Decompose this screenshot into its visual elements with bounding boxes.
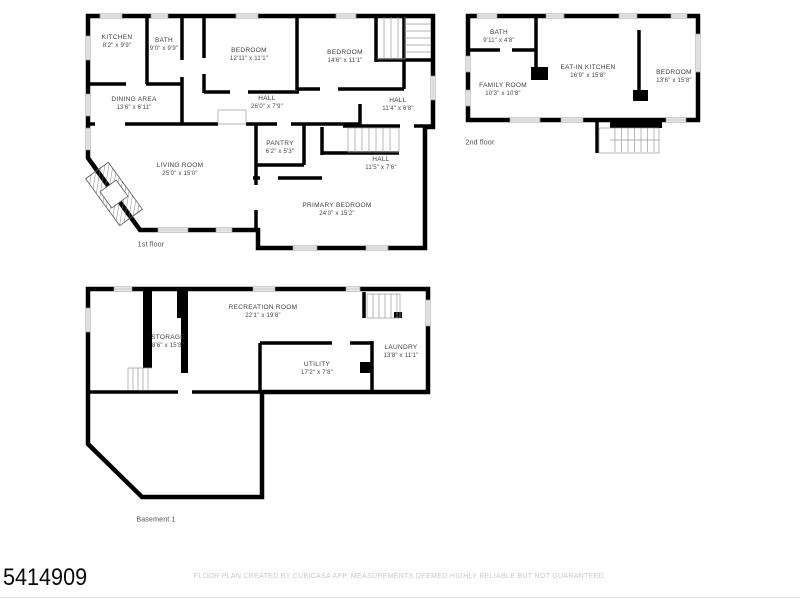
first-floor-walls <box>88 16 433 248</box>
second-floor-plan <box>460 8 705 163</box>
basement-walls <box>88 289 428 497</box>
floor-caption-basement: Basement 1 <box>136 517 175 524</box>
second-floor-staircase-symbol <box>599 128 659 153</box>
disclaimer-text: FLOOR PLAN CREATED BY CUBICASA APP. MEAS… <box>0 573 800 580</box>
first-floor-staircase-symbol <box>348 17 431 152</box>
second-floor-walls <box>468 16 698 153</box>
basement-plan <box>80 280 440 535</box>
floor-caption-second: 2nd floor <box>465 140 494 147</box>
floor-plan-page: KITCHEN 8'2" x 9'9" BATH 9'0" x 9'9" BED… <box>0 0 800 600</box>
first-floor-plan <box>80 8 445 260</box>
bottom-divider <box>0 597 800 598</box>
fireplace-symbol <box>86 162 143 225</box>
second-floor-window-symbols <box>466 14 700 122</box>
hall-step-symbol <box>218 110 246 124</box>
floor-caption-first: 1st floor <box>138 242 165 249</box>
